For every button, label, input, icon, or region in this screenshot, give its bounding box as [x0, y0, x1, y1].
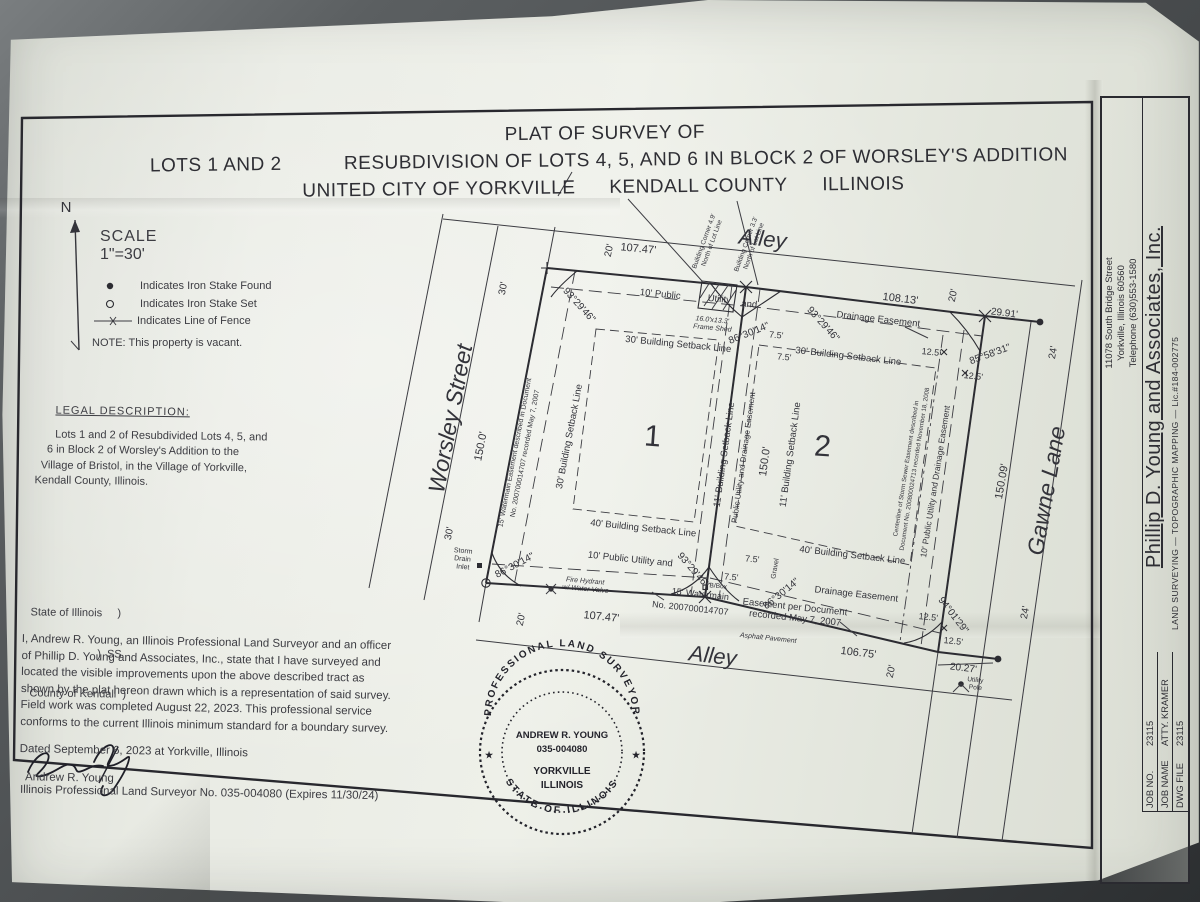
- fire-hydrant-label: Fire Hydrant w/ Water Valve: [562, 576, 610, 595]
- job-table: JOB NO. 23115 JOB NAME ATTY. KRAMER DWG …: [1142, 652, 1188, 812]
- title-county: KENDALL COUNTY: [609, 175, 788, 199]
- setback-40-lot2-bottom: 40' Building Setback Line: [799, 544, 906, 567]
- legend-symbols: [94, 283, 132, 325]
- gawne-width: 24': [1019, 605, 1032, 620]
- label-worsley-street: Worsley Street: [423, 340, 478, 495]
- iron-stake-found-marker: [1037, 319, 1044, 326]
- dim-bottom-lot1: 107.47': [583, 609, 620, 625]
- building-corner-49: Building Corner 4.9' North of Lot Line: [691, 211, 725, 272]
- corner-tick: [541, 262, 553, 274]
- label-lot1: 1: [643, 419, 662, 453]
- alley-width: 20': [603, 243, 616, 258]
- north-boundary: [547, 268, 1040, 322]
- scanned-plat-photo: N: [0, 0, 1200, 902]
- setback-30-lot2-top: 30' Building Setback Line: [795, 345, 902, 368]
- address-line: Telephone (630)553-1580: [1128, 133, 1140, 493]
- job-row: JOB NAME ATTY. KRAMER: [1158, 652, 1173, 811]
- plat-labels: Alley Alley Worsley Street Gawne Lane 1 …: [423, 211, 1070, 692]
- label-lot2: 2: [813, 429, 832, 463]
- setback-11-lot2-west: 11' Building Setback Line: [778, 402, 804, 508]
- angle-sw: 86°30'14": [493, 551, 536, 581]
- dim-20-27: 20.27': [949, 661, 977, 675]
- inlet-line2: Drain: [454, 555, 471, 563]
- scale-heading: SCALE: [100, 228, 157, 246]
- company-address: 11078 South Bridge Street Yorkville, Ill…: [1104, 133, 1139, 493]
- storm-drain-inlet-label: Storm Drain Inlet: [452, 547, 475, 572]
- easement-pu10-top-c: and: [741, 298, 758, 310]
- seal-star-right: ★: [632, 750, 641, 760]
- watermain-bottom-line2: No. 200700014707: [652, 599, 729, 617]
- tick: [941, 349, 947, 355]
- property-note: NOTE: This property is vacant.: [92, 336, 242, 351]
- gawne-width: 24': [1047, 345, 1060, 360]
- surveyor-name: Andrew R. Young: [25, 771, 114, 785]
- company-name: Phillip D. Young and Associates, Inc.: [1143, 157, 1166, 637]
- scale-value: 1"=30': [100, 246, 145, 264]
- setback-30-lot1-top: 30' Building Setback Line: [625, 334, 732, 355]
- angle-n-center-lot2: 93°29'46": [804, 305, 841, 345]
- iron-stake-set-icon: [107, 301, 114, 308]
- angle-ne: 85°58'31": [968, 342, 1012, 367]
- dim-center: 150.0': [757, 446, 773, 477]
- legend-item-set: Indicates Iron Stake Set: [140, 297, 257, 312]
- easement-drainage-bottom: Drainage Easement: [814, 584, 899, 604]
- easement-watermain-west: 15' Watermain Easement described in Docu…: [497, 376, 543, 530]
- offset-12-5: 12.5': [918, 611, 938, 623]
- fire-hydrant-symbol: [546, 584, 556, 594]
- dim-west-lot1: 150.0': [472, 431, 489, 462]
- storm-drain-inlet-symbol: [477, 563, 482, 568]
- alley-width: 20': [515, 612, 528, 627]
- north-arrow: N: [61, 199, 80, 350]
- gawne-west-extension: [912, 652, 938, 834]
- job-label: DWG FILE: [1175, 746, 1185, 811]
- offset-7-5: 7.5': [745, 553, 760, 564]
- company-services: LAND SURVEYING — TOPOGRAPHIC MAPPING — L…: [1170, 337, 1180, 630]
- gawne-east-line: [1002, 280, 1082, 841]
- iron-stake-found-icon: [107, 283, 113, 289]
- job-label: JOB NAME: [1160, 746, 1170, 811]
- job-value: ATTY. KRAMER: [1160, 679, 1170, 746]
- worsley-width: 30': [443, 526, 456, 541]
- job-value: 23115: [1175, 721, 1185, 746]
- north-label: N: [61, 199, 72, 216]
- legal-heading: LEGAL DESCRIPTION:: [55, 404, 267, 422]
- title-strip: 11078 South Bridge Street Yorkville, Ill…: [1100, 96, 1190, 884]
- address-line: 11078 South Bridge Street: [1104, 133, 1116, 493]
- job-value: 23115: [1145, 721, 1155, 746]
- worsley-width: 30': [497, 281, 510, 296]
- pole-line2: Pole: [968, 684, 982, 692]
- worsley-west-line: [369, 214, 443, 588]
- label-alley-bottom: Alley: [686, 640, 740, 671]
- gravel-label: Gravel: [770, 558, 781, 580]
- label-gawne-lane: Gawne Lane: [1022, 424, 1070, 557]
- utility-pole-label: Utility Pole: [966, 676, 985, 692]
- legal-line: Kendall County, Illinois.: [34, 473, 266, 492]
- address-line: Yorkville, Illinois 60560: [1116, 133, 1128, 493]
- easement-per-document: Easement per Document recorded May 7, 20…: [741, 596, 850, 629]
- legend-item-found: Indicates Iron Stake Found: [140, 279, 271, 294]
- surveyor-certificate: I, Andrew R. Young, an Illinois Professi…: [20, 631, 502, 767]
- title-city: UNITED CITY OF YORKVILLE: [302, 177, 575, 202]
- seal-number: 035-004080: [537, 744, 588, 755]
- angle-n-center-lot1: 86°30'14": [727, 320, 771, 346]
- easement-pu10-top-b: Utility: [707, 293, 731, 306]
- easement-drainage-top: Drainage Easement: [836, 309, 921, 329]
- inlet-line3: Inlet: [456, 563, 470, 571]
- asphalt-label: Asphalt Pavement: [739, 632, 798, 645]
- offset-12-5: 12.5': [921, 346, 941, 358]
- title-state: ILLINOIS: [822, 173, 904, 196]
- offset-7-5: 7.5': [777, 351, 792, 362]
- seal-city: YORKVILLE: [533, 766, 591, 777]
- job-row: JOB NO. 23115: [1143, 652, 1158, 811]
- job-label: JOB NO.: [1145, 746, 1155, 811]
- alley-width: 20': [947, 288, 960, 303]
- alley-width: 20': [885, 664, 898, 679]
- offset-12-5: 12.5': [943, 635, 963, 647]
- offset-7-5: 7.5': [724, 571, 739, 582]
- gawne-centerline: [957, 322, 1031, 838]
- easement-pu10-bottom: 10' Public Utility and: [587, 550, 673, 570]
- title-line1: PLAT OF SURVEY OF: [505, 122, 706, 146]
- setback-40-lot1-bottom: 40' Building Setback Line: [590, 517, 697, 539]
- dim-bottom-lot2: 106.75': [840, 645, 877, 661]
- easement-pu10-top-a: 10' Public: [639, 287, 681, 302]
- legend-item-fence: Indicates Line of Fence: [137, 314, 251, 329]
- offset-7-5: 7.5': [769, 329, 784, 340]
- dim-top-lot1: 107.47': [620, 241, 657, 256]
- shed-label: 16.0'x13.3' Frame Shed: [693, 315, 734, 334]
- legal-description: LEGAL DESCRIPTION: Lots 1 and 2 of Resub…: [54, 404, 267, 492]
- iron-stake-found-marker: [995, 656, 1002, 663]
- line-of-fence-icon: [94, 317, 132, 325]
- title-lots: LOTS 1 AND 2: [150, 154, 282, 178]
- job-row: DWG FILE 23115: [1173, 652, 1188, 811]
- dim-29-91: 29.91': [990, 306, 1018, 320]
- jurat-line: State of Illinois ): [30, 606, 127, 621]
- seal-name: ANDREW R. YOUNG: [516, 730, 608, 741]
- offset-12-5: 12.5': [963, 370, 983, 382]
- seal-state: ILLINOIS: [541, 780, 584, 791]
- setback-30-lot1-west: 30' Building Setback Line: [554, 383, 585, 490]
